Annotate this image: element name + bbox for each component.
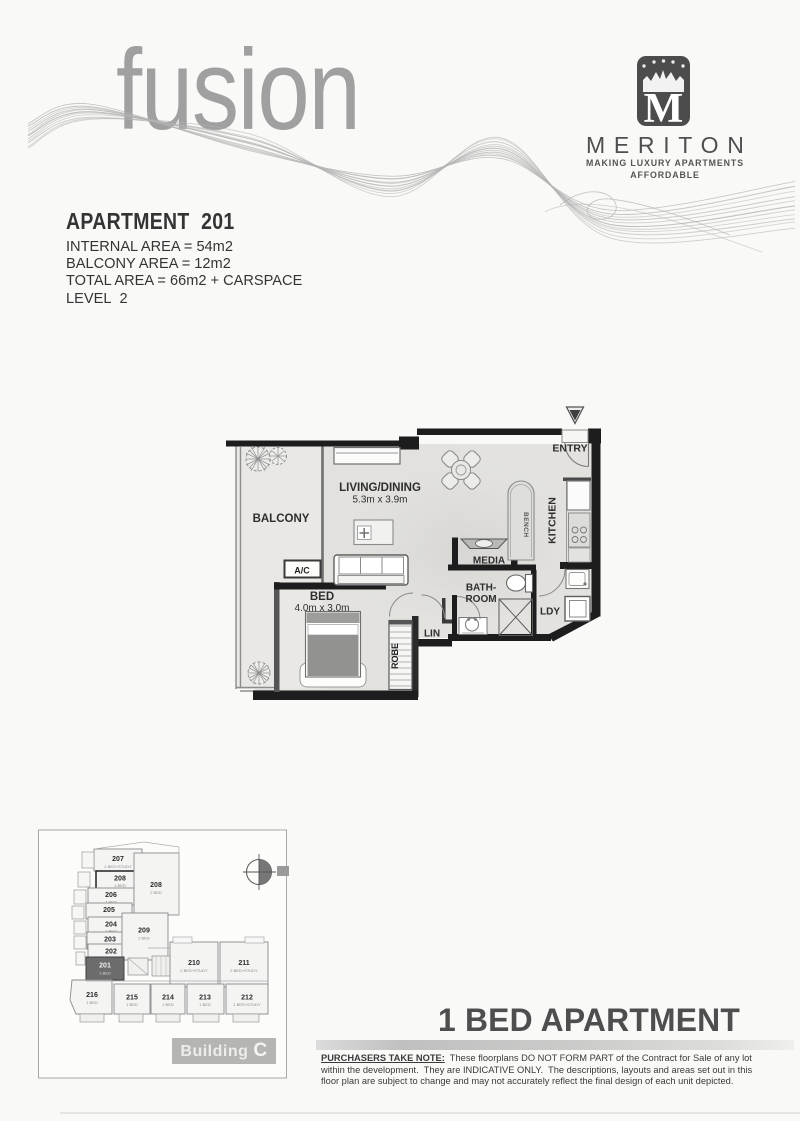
svg-text:4.0m x 3.0m: 4.0m x 3.0m bbox=[294, 603, 349, 614]
svg-text:LIVING/DINING: LIVING/DINING bbox=[339, 482, 421, 494]
svg-text:5.3m x 3.9m: 5.3m x 3.9m bbox=[352, 495, 407, 506]
svg-text:2 BED+STUDY: 2 BED+STUDY bbox=[104, 864, 132, 869]
svg-text:1 BED: 1 BED bbox=[162, 1002, 174, 1007]
svg-text:2 BED: 2 BED bbox=[150, 890, 162, 895]
svg-text:MEDIA: MEDIA bbox=[473, 556, 505, 567]
svg-text:A/C: A/C bbox=[294, 566, 310, 576]
svg-text:205: 205 bbox=[103, 907, 115, 914]
svg-text:203: 203 bbox=[104, 937, 116, 944]
svg-text:207: 207 bbox=[112, 856, 124, 863]
svg-text:1 BED: 1 BED bbox=[86, 1000, 98, 1005]
svg-text:215: 215 bbox=[126, 995, 138, 1002]
svg-text:206: 206 bbox=[105, 892, 117, 899]
svg-text:216: 216 bbox=[86, 992, 98, 999]
svg-text:211: 211 bbox=[238, 960, 249, 967]
svg-text:212: 212 bbox=[241, 995, 253, 1002]
svg-text:210: 210 bbox=[188, 960, 200, 967]
svg-text:2 BED+STUDY: 2 BED+STUDY bbox=[180, 968, 208, 973]
svg-text:209: 209 bbox=[138, 928, 150, 935]
svg-text:204: 204 bbox=[105, 922, 117, 929]
svg-text:2 BED+STUDY: 2 BED+STUDY bbox=[230, 968, 258, 973]
svg-text:2 BED: 2 BED bbox=[138, 936, 150, 941]
svg-text:1 BED+STUDY: 1 BED+STUDY bbox=[233, 1002, 261, 1007]
svg-text:LIN: LIN bbox=[424, 629, 440, 640]
svg-text:BATH-: BATH- bbox=[466, 583, 496, 594]
svg-text:213: 213 bbox=[199, 995, 211, 1002]
svg-text:1 BED: 1 BED bbox=[99, 971, 111, 976]
svg-text:214: 214 bbox=[162, 995, 174, 1002]
svg-text:LDY: LDY bbox=[540, 607, 560, 618]
svg-text:ENTRY: ENTRY bbox=[552, 443, 587, 455]
svg-text:208: 208 bbox=[150, 882, 162, 889]
svg-text:BALCONY: BALCONY bbox=[253, 513, 310, 525]
svg-text:ROBE: ROBE bbox=[390, 643, 400, 669]
svg-text:1 BED: 1 BED bbox=[126, 1002, 138, 1007]
svg-text:KITCHEN: KITCHEN bbox=[547, 497, 559, 544]
svg-text:1 BED: 1 BED bbox=[199, 1002, 211, 1007]
svg-text:201: 201 bbox=[99, 963, 111, 970]
svg-text:BENCH: BENCH bbox=[522, 512, 529, 538]
svg-text:2 BED: 2 BED bbox=[114, 883, 126, 888]
svg-text:M: M bbox=[644, 86, 684, 132]
svg-text:202: 202 bbox=[105, 949, 117, 956]
svg-text:BED: BED bbox=[310, 591, 334, 603]
svg-text:208: 208 bbox=[114, 876, 126, 883]
svg-text:ROOM: ROOM bbox=[465, 594, 496, 605]
